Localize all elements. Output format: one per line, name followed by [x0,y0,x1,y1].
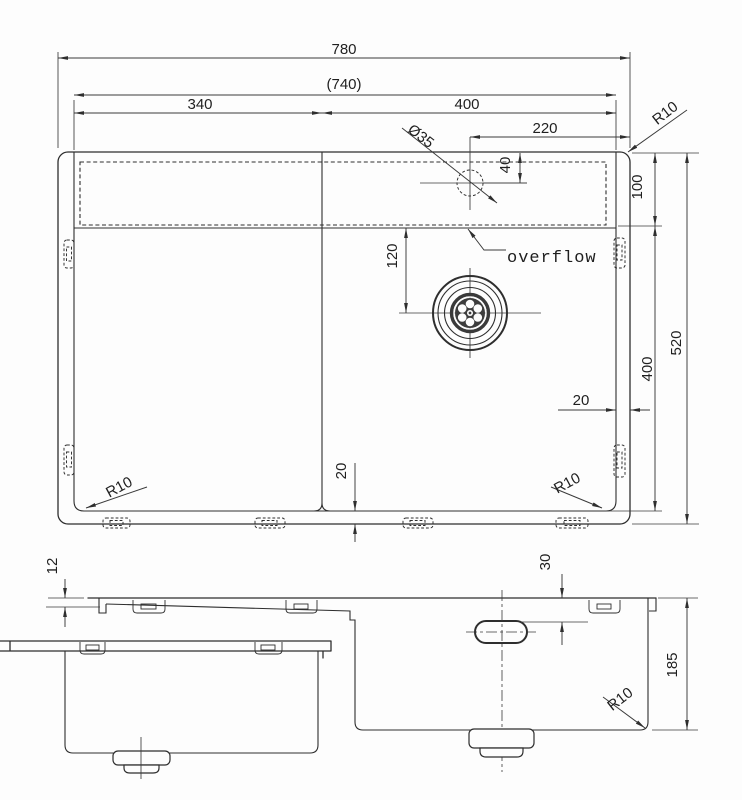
overflow-label: overflow [507,249,597,268]
front-dimension-labels: 12 30 185 R10 [44,554,681,715]
dim-overall-width: 780 [331,41,356,58]
dim-corner-radius-top-right: R10 [649,98,681,128]
dim-overall-depth: 520 [668,330,685,355]
side-section-view [0,641,331,779]
dim-right-section: 400 [454,96,479,113]
top-view-dimension-labels: 780 (740) 340 400 220 R10 Ø35 40 100 120… [103,41,685,501]
dim-bowl-depth: 185 [664,652,681,677]
dim-bottom-flange: 20 [333,463,350,480]
mounting-clips-side [80,642,282,654]
dim-right-flange: 20 [573,392,590,409]
dim-tap-from-edge: 40 [497,157,514,174]
top-view-dimension-lines [58,52,699,542]
overflow-hole-front [466,621,536,643]
top-view: 780 (740) 340 400 220 R10 Ø35 40 100 120… [58,41,699,542]
dim-corner-radius-bottom-left: R10 [103,473,135,501]
side-outline [0,641,331,753]
dim-bowl-front-depth: 400 [639,356,656,381]
dim-overflow-offset: 30 [537,554,554,571]
dim-cutout-width: (740) [326,76,361,93]
sink-technical-drawing: 780 (740) 340 400 220 R10 Ø35 40 100 120… [0,0,742,800]
drain-strainer [399,268,541,358]
dim-left-section: 340 [187,96,212,113]
front-outline [88,598,656,730]
drawing-sheet: 780 (740) 340 400 220 R10 Ø35 40 100 120… [0,0,742,800]
dim-rear-channel: 100 [629,174,646,199]
overflow-channel-hidden-outline [80,162,606,225]
front-section-view: 12 30 185 R10 [44,554,698,772]
dim-corner-radius-front: R10 [604,684,636,714]
dim-tap-offset: 220 [532,120,557,137]
dim-drain-offset: 120 [384,243,401,268]
drain-side [113,737,170,779]
mounting-clips-plan [64,238,625,528]
drain-front [469,729,534,757]
dim-rim-drop: 12 [44,558,61,575]
leader-overflow [468,229,506,250]
dim-tap-diameter: Ø35 [404,121,437,152]
